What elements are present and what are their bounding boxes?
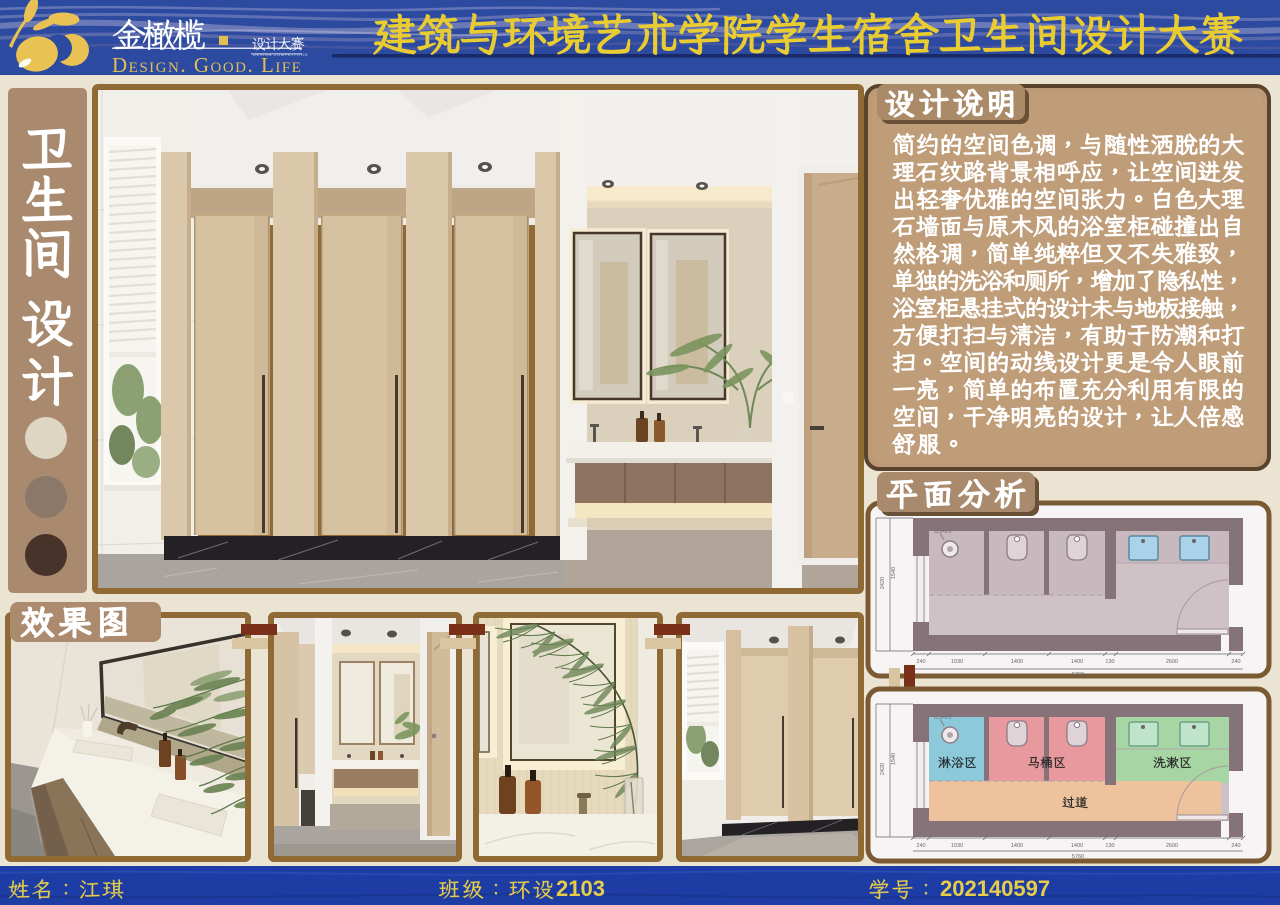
svg-text:CL-PS-C: CL-PS-C [934, 529, 953, 534]
svg-text:1400: 1400 [1071, 843, 1083, 849]
svg-text:CL-PS-C: CL-PS-C [934, 715, 953, 720]
svg-text:2600: 2600 [1166, 843, 1178, 849]
svg-text:2420: 2420 [880, 577, 886, 589]
svg-text:1400: 1400 [1011, 659, 1023, 665]
svg-text:130: 130 [1105, 659, 1114, 665]
svg-text:1540: 1540 [891, 753, 897, 765]
svg-text:2420: 2420 [880, 763, 886, 775]
svg-text:240: 240 [1231, 843, 1240, 849]
svg-text:1030: 1030 [951, 843, 963, 849]
svg-text:202140597: 202140597 [940, 876, 1050, 901]
svg-text:1030: 1030 [951, 659, 963, 665]
svg-text:1400: 1400 [1011, 843, 1023, 849]
svg-text:5760: 5760 [1072, 672, 1084, 678]
svg-text:5760: 5760 [1072, 854, 1084, 860]
svg-text:240: 240 [1231, 659, 1240, 665]
svg-text:2103: 2103 [556, 876, 605, 901]
svg-text:1400: 1400 [1071, 659, 1083, 665]
svg-text:130: 130 [1105, 843, 1114, 849]
svg-text:240: 240 [916, 843, 925, 849]
svg-text:1540: 1540 [891, 567, 897, 579]
svg-text:240: 240 [916, 659, 925, 665]
svg-text:2600: 2600 [1166, 659, 1178, 665]
